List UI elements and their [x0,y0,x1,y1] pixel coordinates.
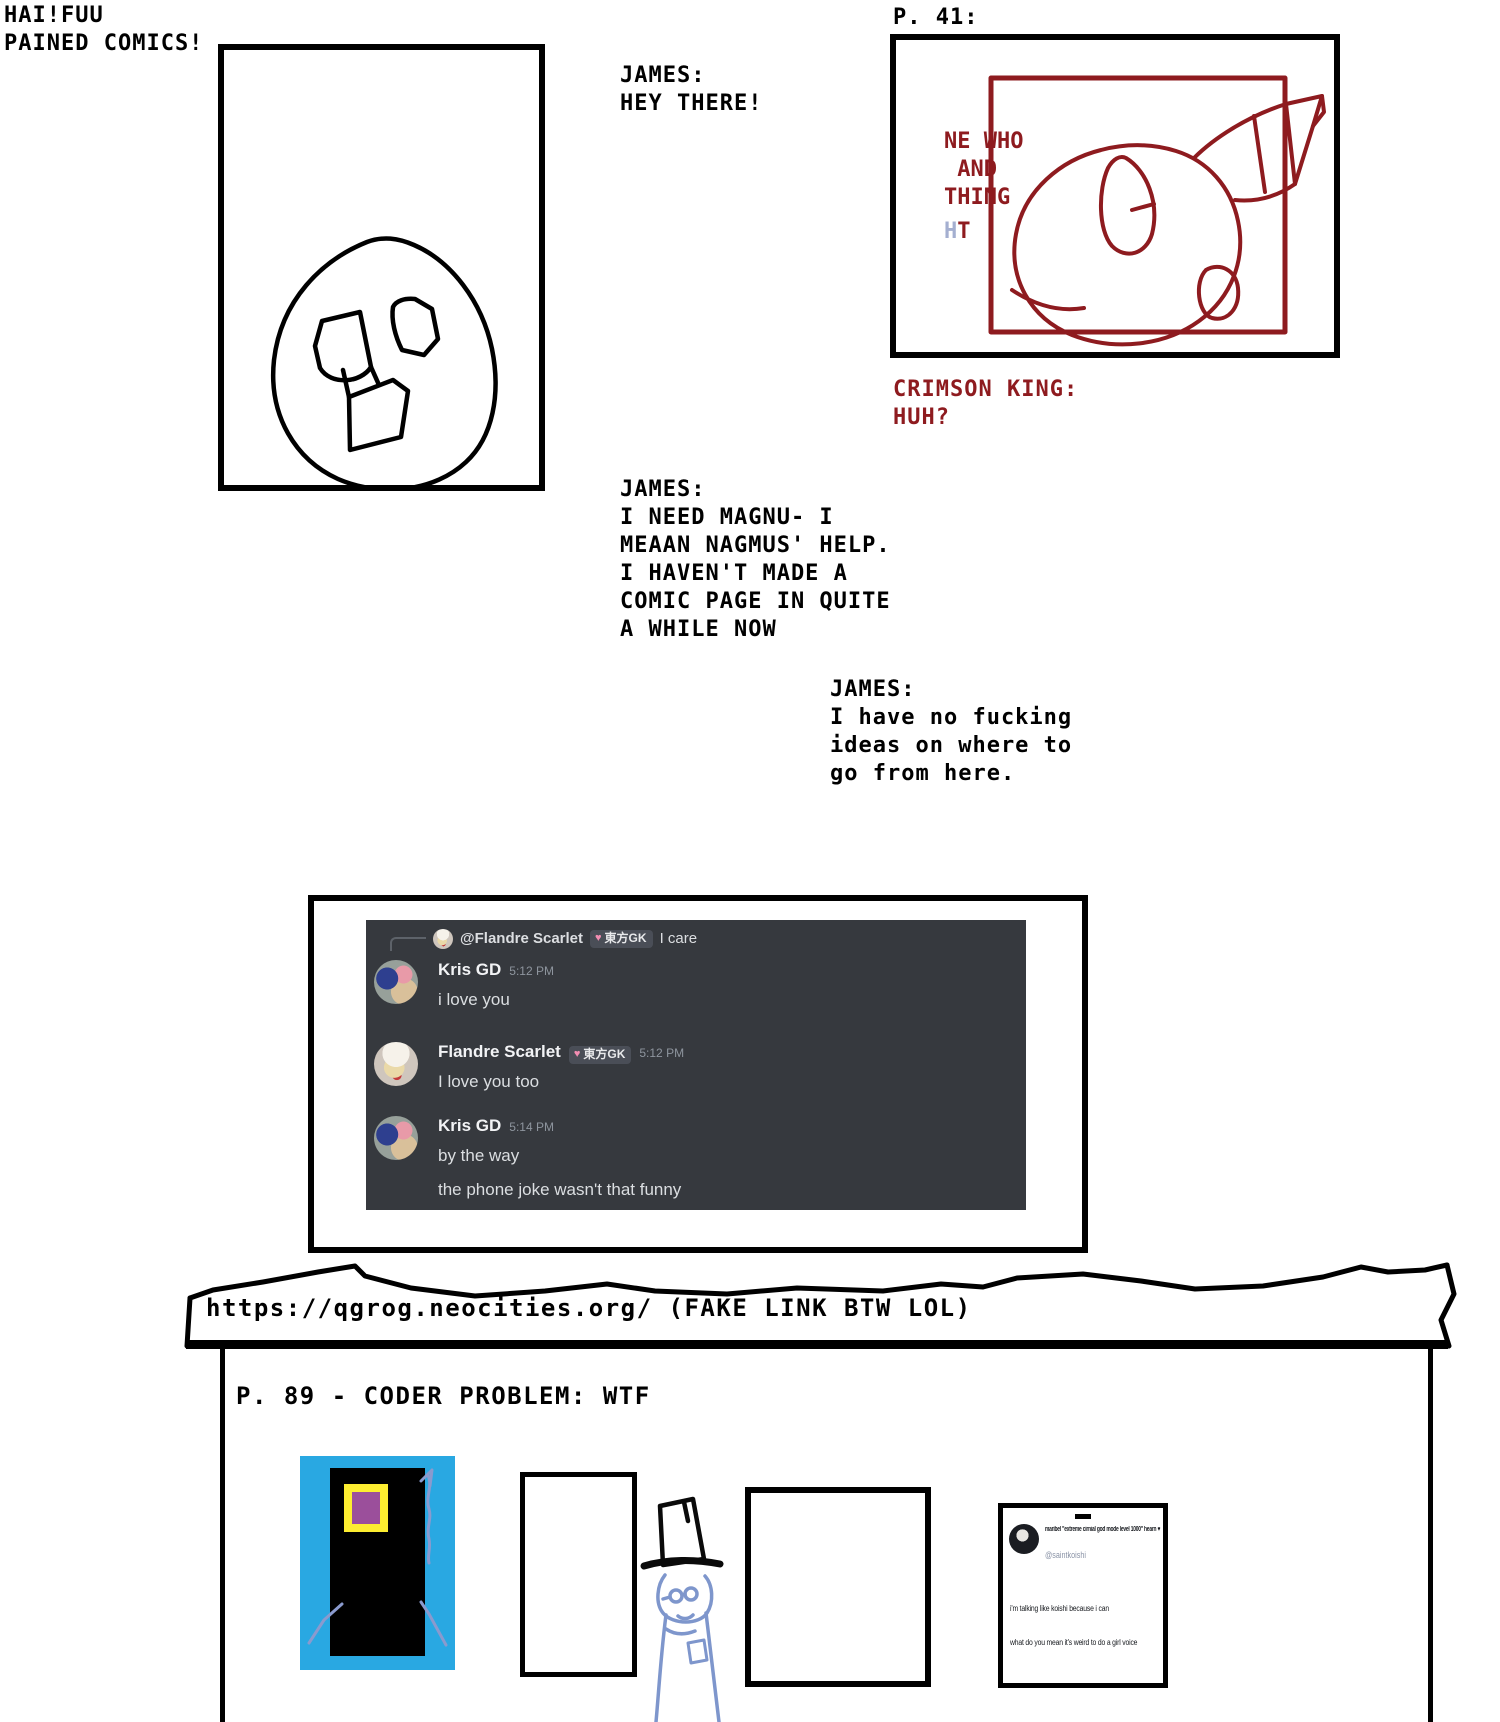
dialogue-line: I have no fucking [830,705,1072,730]
glasses-left-lens [670,1590,682,1602]
author-name: Kris GD [438,1116,501,1136]
figure-collar [666,1629,695,1634]
hat-crown [660,1499,704,1565]
glasses-right-lens [685,1588,697,1600]
dialogue-line: HUH? [893,405,950,430]
speaker-label: CRIMSON KING: [893,377,1078,402]
right-eye [392,299,438,355]
page-41-label: P. 41: [893,4,978,32]
author-name: Flandre Scarlet [438,1042,561,1062]
url-text[interactable]: https://qgrog.neocities.org/ (FAKE LINK … [206,1294,972,1322]
dialogue-line: I HAVEN'T MADE A [620,561,848,586]
panel-text-line: NE WHO [944,129,1023,154]
speaker-label: JAMES: [620,63,705,88]
avatar [374,1116,418,1160]
crimson-eye-slash [1132,204,1154,210]
site-title-line2: PAINED COMICS! [4,31,203,56]
mouth-line [343,370,349,397]
comic-panel-discord: @Flandre Scarlet ♥東方GK I care Kris GD 5:… [308,895,1088,1253]
faint-h: H [944,219,957,244]
reply-mention: @Flandre Scarlet [460,930,583,947]
face-outline [273,238,495,485]
discord-reply-header: @Flandre Scarlet ♥東方GK I care [390,926,697,951]
dialogue-line: I NEED MAGNU- I [620,505,834,530]
heart-icon: ♥ [574,1047,581,1062]
site-title: HAI!FUUPAINED COMICS! [4,2,203,58]
speaker-label: JAMES: [830,677,915,702]
figure-body-right [706,1613,719,1722]
dialogue-line: HEY THERE! [620,91,762,116]
browser-divider-rule [186,1340,1448,1349]
figure-mouth [678,1615,693,1619]
message-header: Flandre Scarlet ♥東方GK 5:12 PM [438,1042,684,1064]
dialogue-line: A WHILE NOW [620,617,777,642]
faint-t: T [957,219,970,244]
mouth [349,380,408,450]
sketch-overlay [225,1353,1430,1722]
role-badge: ♥東方GK [590,930,653,948]
avatar [374,1042,418,1086]
dialogue-james-3: JAMES:I have no fuckingideas on where to… [830,676,1072,788]
door-squiggle-hook [421,1470,432,1486]
site-title-line1: HAI!FUU [4,3,104,28]
white-face-drawing [224,50,539,485]
discord-screenshot: @Flandre Scarlet ♥東方GK I care Kris GD 5:… [366,920,1026,1210]
dialogue-line: ideas on where to [830,733,1072,758]
badge-text: 東方GK [605,931,647,946]
speaker-label: JAMES: [620,477,705,502]
avatar [374,960,418,1004]
coder-figure-drawing [656,1575,719,1722]
reply-elbow-line [390,937,426,951]
timestamp: 5:12 PM [509,964,554,978]
dialogue-crimson-king: CRIMSON KING:HUH? [893,376,1078,432]
comic-panel-1 [218,44,545,491]
panel-2-text: NE WHO ANDTHING [944,128,1023,212]
message-text: the phone joke wasn't that funny [438,1180,681,1200]
dialogue-line: COMIC PAGE IN QUITE [620,589,891,614]
door-crease-left [309,1604,342,1643]
author-name: Kris GD [438,960,501,980]
message-text: I love you too [438,1072,539,1092]
hat-crease [684,1502,688,1521]
panel-text-line: THING [944,185,1010,210]
badge-text: 東方GK [583,1047,625,1062]
message-header: Kris GD 5:14 PM [438,1116,554,1136]
role-badge: ♥東方GK [569,1046,632,1064]
right-torn-edge [1441,1265,1454,1346]
panel-text-line: AND [944,157,997,182]
dialogue-james-1: JAMES:HEY THERE! [620,62,762,118]
dialogue-james-2: JAMES:I NEED MAGNU- IMEAAN NAGMUS' HELP.… [620,476,891,644]
comic-page: HAI!FUUPAINED COMICS! JAMES:HEY THERE! P… [0,0,1500,1722]
figure-body-left [656,1615,666,1722]
panel-2-faint-text: HT [944,218,971,246]
message-text: by the way [438,1146,519,1166]
heart-icon: ♥ [595,931,602,946]
left-eye-tail [371,367,379,385]
crimson-frame [991,78,1285,332]
message-text: i love you [438,990,510,1010]
dialogue-line: MEAAN NAGMUS' HELP. [620,533,891,558]
dialogue-line: go from here. [830,761,1015,786]
hat-brim [644,1560,720,1566]
timestamp: 5:14 PM [509,1120,554,1134]
left-edge-line [187,1298,190,1346]
door-crease-right [421,1602,446,1645]
crimson-right-eye [1199,267,1238,319]
timestamp: 5:12 PM [639,1046,684,1060]
figure-pocket [688,1640,707,1663]
reply-message: I care [660,930,698,947]
reply-mini-avatar [433,929,453,949]
top-hat-icon [644,1499,720,1566]
door-squiggle-right [428,1475,430,1563]
comic-panel-2: NE WHO ANDTHING HT [890,34,1340,358]
message-header: Kris GD 5:12 PM [438,960,554,980]
